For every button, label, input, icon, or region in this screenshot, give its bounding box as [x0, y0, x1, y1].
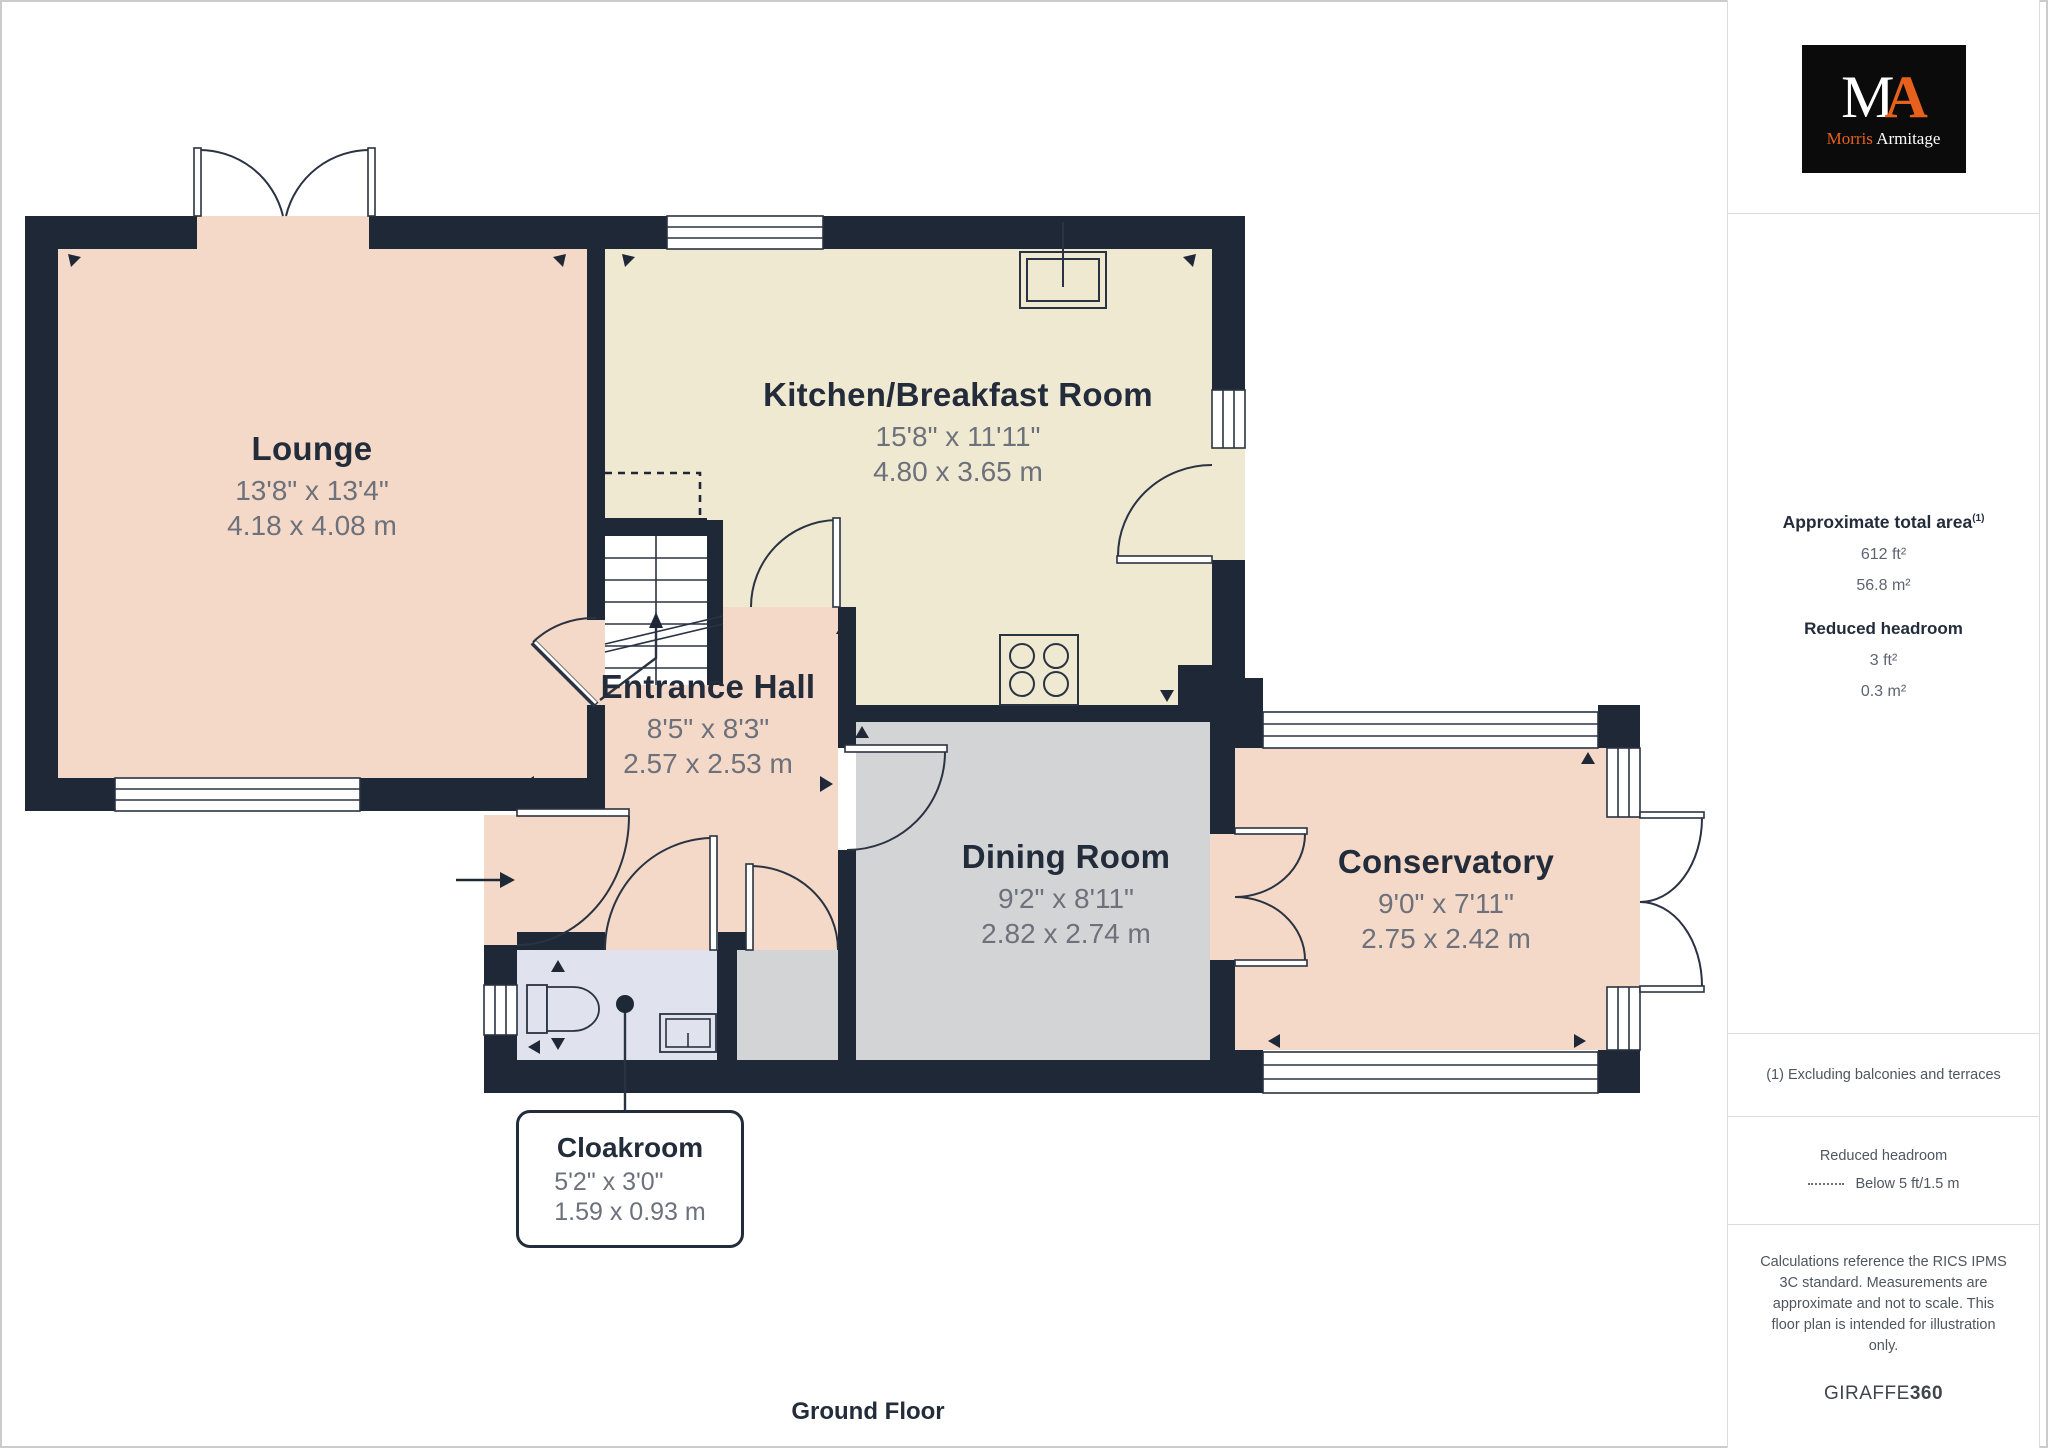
- legend-item: Below 5 ft/1.5 m: [1856, 1176, 1960, 1192]
- disclaimer-block: Calculations reference the RICS IPMS 3C …: [1728, 1252, 2039, 1405]
- hob: [1000, 635, 1078, 705]
- conservatory-east-glazing-upper: [1607, 748, 1640, 817]
- conservatory-bottom-glazing: [1263, 1052, 1598, 1093]
- reduced-headroom-title: Reduced headroom: [1728, 619, 2039, 639]
- room-metric: 4.80 x 3.65 m: [873, 456, 1043, 487]
- reduced-headroom-ft: 3 ft²: [1728, 652, 2039, 670]
- room-name: Cloakroom: [557, 1132, 703, 1164]
- room-name: Entrance Hall: [601, 668, 816, 706]
- room-name: Kitchen/Breakfast Room: [763, 376, 1153, 414]
- room-metric: 2.57 x 2.53 m: [623, 748, 793, 779]
- room-name: Conservatory: [1338, 843, 1554, 881]
- callout-anchor-dot: [616, 995, 634, 1013]
- kitchen-back-door-gap: [1212, 448, 1245, 560]
- room-imperial: 15'8" x 11'11": [876, 421, 1041, 452]
- room-metric: 2.75 x 2.42 m: [1361, 923, 1531, 954]
- room-metric: 4.18 x 4.08 m: [227, 510, 397, 541]
- total-area-ft: 612 ft²: [1728, 546, 2039, 564]
- headroom-legend: Reduced headroom Below 5 ft/1.5 m: [1728, 1116, 2039, 1224]
- disclaimer-text: Calculations reference the RICS IPMS 3C …: [1758, 1252, 2010, 1357]
- kitchen-top-window: [667, 216, 823, 249]
- sidebar: MA Morris Armitage Approximate total are…: [1727, 0, 2040, 1448]
- room-imperial: 5'2" x 3'0": [554, 1168, 663, 1196]
- conservatory-west-door-gap: [1210, 834, 1235, 960]
- lounge-entrance-double-door: [194, 148, 375, 216]
- room-imperial: 8'5" x 8'3": [647, 713, 769, 744]
- dotted-line-sample: [1808, 1183, 1844, 1185]
- lobby-floor: [737, 950, 838, 1060]
- hall-floor-west: [517, 811, 605, 932]
- toilet: [527, 985, 599, 1033]
- kitchen-east-window: [1212, 390, 1245, 448]
- room-imperial: 13'8" x 13'4": [235, 475, 389, 506]
- room-name: Dining Room: [962, 838, 1171, 876]
- sidebar-divider-1: [1728, 213, 2039, 214]
- total-area-m: 56.8 m²: [1728, 577, 2039, 595]
- agency-logo: MA Morris Armitage: [1728, 45, 2039, 173]
- lobby-door-gap: [752, 932, 838, 950]
- room-metric: 2.82 x 2.74 m: [981, 918, 1151, 949]
- legend-title: Reduced headroom: [1820, 1148, 1947, 1164]
- dining-room-label: Dining Room 9'2" x 8'11"2.82 x 2.74 m: [962, 838, 1171, 951]
- lounge-label: Lounge 13'8" x 13'4"4.18 x 4.08 m: [227, 430, 397, 543]
- area-summary: Approximate total area(1) 612 ft² 56.8 m…: [1728, 512, 2039, 701]
- room-name: Lounge: [227, 430, 397, 468]
- sidebar-divider-4: [1728, 1224, 2039, 1225]
- giraffe360-brand: GIRAFFE360: [1824, 1383, 1943, 1405]
- conservatory-label: Conservatory 9'0" x 7'11"2.75 x 2.42 m: [1338, 843, 1554, 956]
- conservatory-east-glazing-lower: [1607, 987, 1640, 1050]
- room-metric: 1.59 x 0.93 m: [554, 1198, 705, 1226]
- conservatory-east-door-gap: [1607, 817, 1640, 987]
- total-area-title: Approximate total area(1): [1728, 512, 2039, 533]
- cloakroom-window: [484, 985, 517, 1035]
- reduced-headroom-m: 0.3 m²: [1728, 683, 2039, 701]
- kitchen-label: Kitchen/Breakfast Room 15'8" x 11'11"4.8…: [763, 376, 1153, 489]
- logo-name: Morris Armitage: [1827, 129, 1941, 149]
- floorplan-page: Lounge 13'8" x 13'4"4.18 x 4.08 m Kitche…: [0, 0, 2048, 1448]
- floor-label: Ground Floor: [791, 1398, 944, 1426]
- conservatory-top-glazing: [1263, 712, 1598, 748]
- logo-monogram: MA: [1841, 69, 1926, 126]
- entrance-hall-label: Entrance Hall 8'5" x 8'3"2.57 x 2.53 m: [601, 668, 816, 781]
- room-imperial: 9'2" x 8'11": [998, 883, 1134, 914]
- lounge-door-recess: [197, 216, 369, 249]
- basin: [660, 1014, 716, 1052]
- lounge-bottom-window: [115, 778, 360, 811]
- room-imperial: 9'0" x 7'11": [1378, 888, 1514, 919]
- footnote-marker: (1): [1972, 513, 1984, 524]
- area-footnote: (1) Excluding balconies and terraces: [1728, 1033, 2039, 1116]
- cloakroom-callout: Cloakroom 5'2" x 3'0"1.59 x 0.93 m: [516, 1110, 744, 1248]
- conservatory-external-doors: [1640, 812, 1704, 992]
- cloak-door-gap: [605, 932, 710, 950]
